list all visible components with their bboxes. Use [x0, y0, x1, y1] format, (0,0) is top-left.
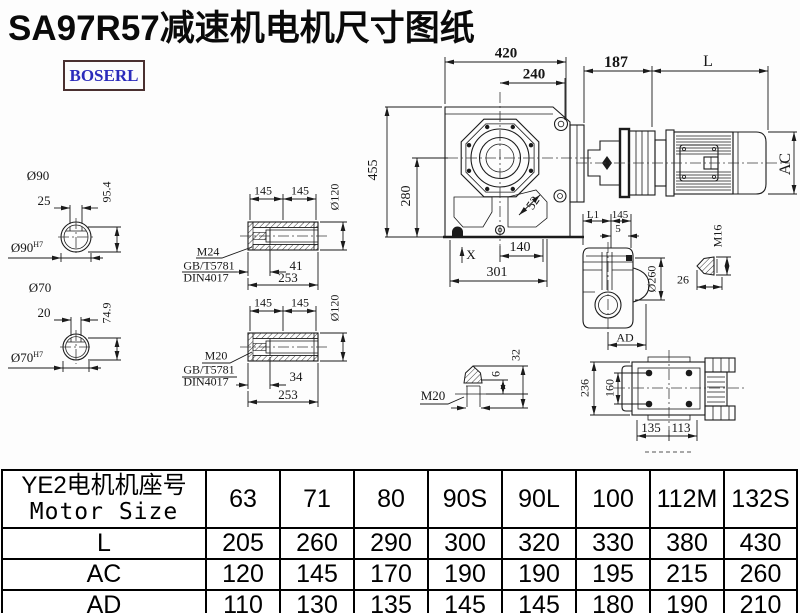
dimension-lines: [8, 57, 797, 441]
dim-front-inner-width: 240: [523, 67, 546, 84]
dim-hollow2-depth: 34: [290, 369, 303, 385]
table-header-row: YE2电机机座号 Motor Size 63 71 80 90S 90L 100…: [2, 470, 797, 528]
header-motor-size-cn: YE2电机机座号: [3, 473, 205, 499]
cell-AD-7: 210: [724, 590, 797, 613]
cell-L-3: 300: [428, 528, 502, 559]
side-view: [583, 242, 649, 336]
dim-shaft90-bore: Ø90H7: [11, 240, 43, 256]
col-63: 63: [206, 470, 280, 528]
dim-front-height: 455: [366, 160, 382, 181]
dim-foot-140: 140: [510, 240, 531, 256]
cell-L-1: 260: [280, 528, 354, 559]
cell-L-7: 430: [724, 528, 797, 559]
cell-AC-6: 215: [650, 559, 724, 590]
col-71: 71: [280, 470, 354, 528]
dim-motor-AC: AC: [777, 153, 795, 175]
cell-AD-4: 145: [502, 590, 576, 613]
m16-bolt-detail: [697, 257, 717, 275]
dim-m20-d6: 6: [489, 371, 504, 377]
shaft70-bore-fit: H7: [33, 350, 43, 359]
row-label-L: L: [2, 528, 206, 559]
motor-view: [576, 129, 790, 197]
dim-side-5: 5: [615, 223, 621, 235]
shaft-90-view: [58, 218, 94, 256]
hollow-shaft-m20: [240, 333, 328, 361]
dim-hollow1-len-b: 145: [291, 184, 309, 199]
col-112M: 112M: [650, 470, 724, 528]
col-100: 100: [576, 470, 650, 528]
dim-m20-d32: 32: [509, 349, 524, 361]
dim-side-dia260: Ø260: [645, 266, 660, 293]
dim-shaft70-height: 74.9: [100, 303, 115, 324]
cell-AD-3: 145: [428, 590, 502, 613]
dim-shaft70-dia: Ø70: [29, 280, 51, 296]
dim-shaft90-dia: Ø90: [27, 168, 49, 184]
cell-AC-5: 195: [576, 559, 650, 590]
table-row-AD: AD 110 130 135 145 145 180 190 210: [2, 590, 797, 613]
cell-AD-0: 110: [206, 590, 280, 613]
label-hollow1-thread: M24: [197, 245, 220, 260]
drawing-sheet: SA97R57减速机电机尺寸图纸 BOSERL: [0, 0, 800, 613]
dim-hollow1-total: 253: [278, 270, 298, 286]
front-view: [428, 92, 592, 246]
dim-shaft90-height: 95.4: [100, 182, 115, 203]
dim-top-160: 160: [603, 379, 618, 397]
dim-hollow1-len-a: 145: [254, 184, 272, 199]
dim-top-135: 135: [641, 420, 661, 436]
cell-AD-2: 135: [354, 590, 428, 613]
dim-base-301: 301: [487, 265, 508, 281]
shaft-70-view: [60, 330, 92, 364]
label-hollow2-thread: M20: [205, 349, 228, 364]
shaft90-bore-value: Ø90: [11, 240, 33, 255]
shaft70-bore-value: Ø70: [11, 350, 33, 365]
col-90S: 90S: [428, 470, 502, 528]
cell-L-4: 320: [502, 528, 576, 559]
dim-motor-length-L: L: [703, 53, 713, 71]
cell-AC-3: 190: [428, 559, 502, 590]
shaft90-bore-fit: H7: [33, 240, 43, 249]
dim-hollow2-len-b: 145: [291, 296, 309, 311]
cell-AC-4: 190: [502, 559, 576, 590]
table-row-AC: AC 120 145 170 190 190 195 215 260: [2, 559, 797, 590]
cell-L-0: 205: [206, 528, 280, 559]
dim-front-inner-height: 280: [399, 186, 415, 207]
cell-L-5: 330: [576, 528, 650, 559]
dim-m16-thread: M16: [711, 225, 726, 248]
dim-m20-thread: M20: [421, 388, 446, 404]
hollow-shaft-m24: [240, 222, 328, 250]
col-90L: 90L: [502, 470, 576, 528]
dim-side-AD: AD: [616, 331, 633, 346]
dim-front-width: 420: [495, 46, 518, 63]
cell-AD-6: 190: [650, 590, 724, 613]
cell-AC-1: 145: [280, 559, 354, 590]
dim-shaft90-key: 25: [38, 193, 51, 209]
cell-AC-2: 170: [354, 559, 428, 590]
dim-hollow1-dia: Ø120: [328, 184, 343, 211]
header-motor-size: YE2电机机座号 Motor Size: [2, 470, 206, 528]
col-132S: 132S: [724, 470, 797, 528]
label-hollow1-std2: DIN4017: [183, 271, 228, 286]
dim-motor-flange: 187: [604, 54, 628, 72]
row-label-AC: AC: [2, 559, 206, 590]
cell-AD-1: 130: [280, 590, 354, 613]
cell-AC-0: 120: [206, 559, 280, 590]
dim-top-236: 236: [578, 379, 593, 397]
motor-size-table: YE2电机机座号 Motor Size 63 71 80 90S 90L 100…: [1, 469, 798, 613]
dim-hollow2-total: 253: [278, 387, 298, 403]
dim-hollow2-len-a: 145: [254, 296, 272, 311]
dim-top-113: 113: [671, 420, 690, 436]
top-view: [614, 350, 745, 452]
dim-hollow2-dia: Ø120: [328, 295, 343, 322]
dim-x-mark: X: [466, 247, 475, 263]
cell-AD-5: 180: [576, 590, 650, 613]
dim-m16-len: 26: [677, 273, 689, 288]
cell-L-2: 290: [354, 528, 428, 559]
table-row-L: L 205 260 290 300 320 330 380 430: [2, 528, 797, 559]
col-80: 80: [354, 470, 428, 528]
dim-shaft70-bore: Ø70H7: [11, 350, 43, 366]
label-hollow2-std2: DIN4017: [183, 375, 228, 390]
cell-L-6: 380: [650, 528, 724, 559]
row-label-AD: AD: [2, 590, 206, 613]
dim-side-145: 145: [612, 209, 629, 221]
header-motor-size-en: Motor Size: [3, 500, 205, 525]
dim-shaft70-key: 20: [38, 305, 51, 321]
cell-AC-7: 260: [724, 559, 797, 590]
dim-side-L1: L1: [587, 209, 599, 221]
